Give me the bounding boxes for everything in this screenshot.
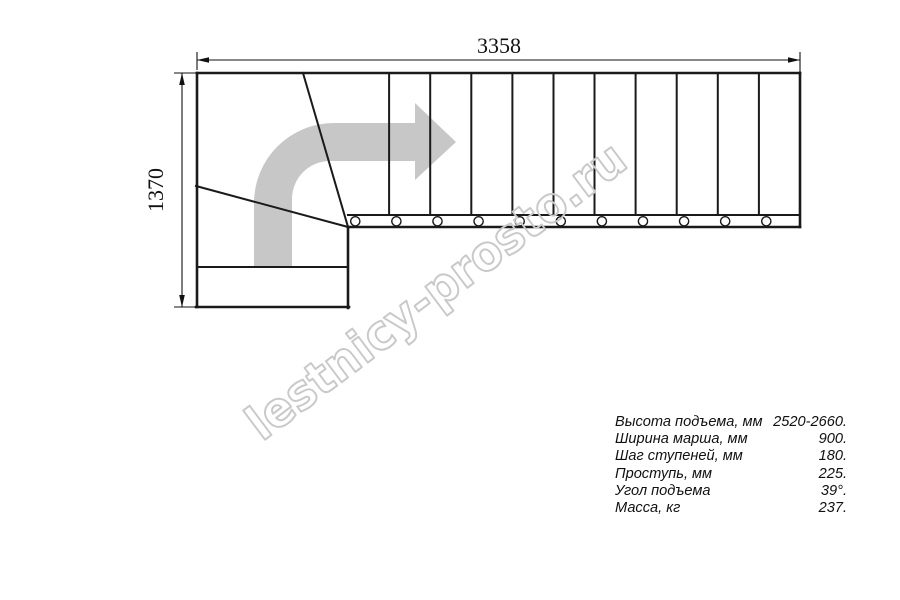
pin-icon [721, 217, 730, 226]
spec-value: 225. [819, 466, 847, 483]
spec-value: 180. [819, 448, 847, 465]
pin-icon [597, 217, 606, 226]
spec-label: Шаг ступеней, мм [615, 448, 743, 465]
spec-row-mass: Масса, кг 237. [615, 500, 847, 517]
dim-arrow-left-icon [197, 57, 209, 63]
spec-label: Масса, кг [615, 500, 680, 517]
staircase-drawing-page: 3358 1370 lestnicy-prosto.ru Высота подъ… [0, 0, 900, 600]
specs-table: Высота подъема, мм 2520-2660. Ширина мар… [615, 414, 847, 517]
spec-row-angle: Угол подъема 39°. [615, 483, 847, 500]
pin-icon [351, 217, 360, 226]
dim-arrow-up-icon [179, 73, 185, 85]
spec-row-flight-width: Ширина марша, мм 900. [615, 431, 847, 448]
spec-label: Ширина марша, мм [615, 431, 748, 448]
dim-arrow-down-icon [179, 295, 185, 307]
dim-height-label: 1370 [143, 168, 168, 212]
dim-arrow-right-icon [788, 57, 800, 63]
spec-value: 39°. [821, 483, 847, 500]
spec-row-step: Шаг ступеней, мм 180. [615, 448, 847, 465]
pin-icon [638, 217, 647, 226]
spec-value: 900. [819, 431, 847, 448]
spec-value: 237. [819, 500, 847, 517]
direction-arrow [254, 103, 456, 267]
pin-icon [392, 217, 401, 226]
spec-label: Угол подъема [615, 483, 710, 500]
direction-arrow-shape [254, 103, 456, 267]
spec-label: Высота подъема, мм [615, 414, 763, 431]
spec-row-tread: Проступь, мм 225. [615, 466, 847, 483]
pin-icon [680, 217, 689, 226]
pin-icon [433, 217, 442, 226]
spec-value: 2520-2660. [773, 414, 847, 431]
dim-width-label: 3358 [477, 33, 521, 58]
dimension-height [174, 73, 197, 307]
spec-row-height: Высота подъема, мм 2520-2660. [615, 414, 847, 431]
spec-label: Проступь, мм [615, 466, 712, 483]
pin-icon [762, 217, 771, 226]
